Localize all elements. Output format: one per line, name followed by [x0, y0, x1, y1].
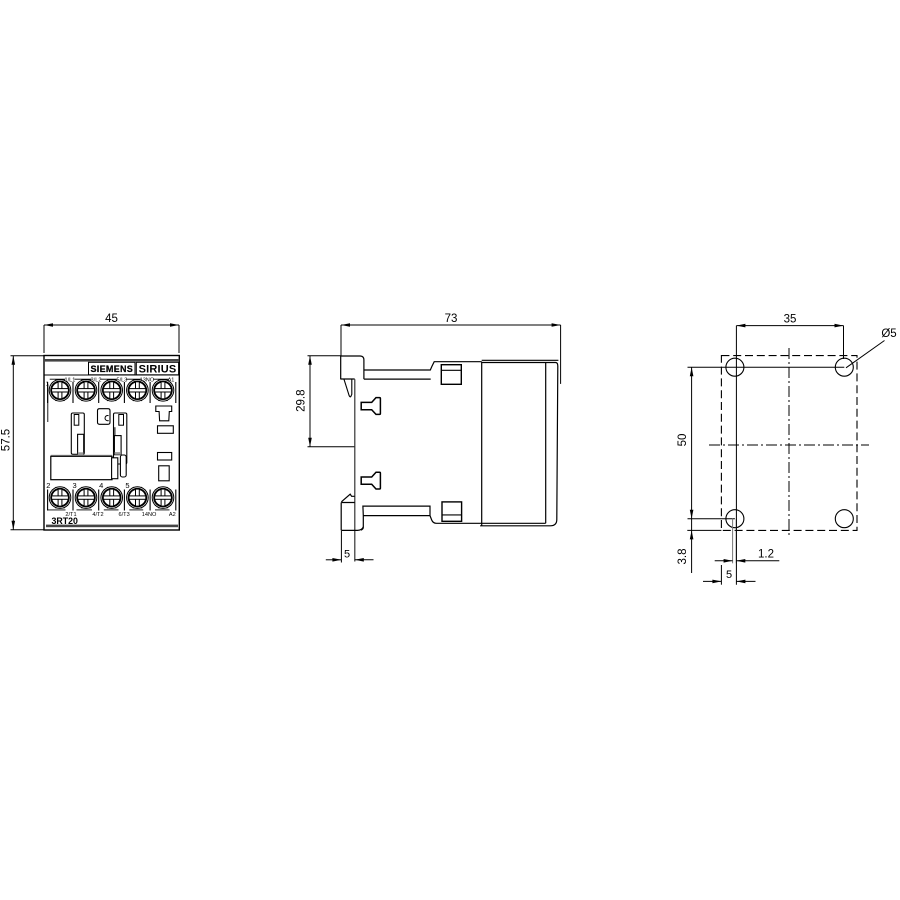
svg-text:3: 3 — [73, 481, 77, 490]
svg-text:4: 4 — [99, 481, 103, 490]
svg-text:35: 35 — [784, 314, 797, 326]
svg-text:5: 5 — [125, 481, 129, 490]
svg-text:Ø5: Ø5 — [881, 328, 896, 340]
svg-text:5: 5 — [344, 549, 350, 561]
svg-text:50: 50 — [677, 434, 689, 447]
svg-text:4/T2: 4/T2 — [92, 512, 103, 518]
svg-text:1.2: 1.2 — [758, 549, 774, 561]
svg-text:5: 5 — [726, 569, 732, 581]
svg-text:57.5: 57.5 — [1, 429, 13, 451]
svg-text:3RT20: 3RT20 — [52, 516, 79, 526]
svg-text:6/T3: 6/T3 — [118, 512, 129, 518]
svg-text:2: 2 — [46, 481, 50, 490]
svg-text:29.8: 29.8 — [296, 390, 308, 412]
svg-text:3.8: 3.8 — [677, 549, 689, 565]
svg-text:A2: A2 — [169, 512, 176, 518]
svg-text:SIEMENS: SIEMENS — [90, 364, 133, 374]
svg-text:14NO: 14NO — [142, 512, 157, 518]
svg-text:45: 45 — [105, 313, 118, 325]
svg-text:73: 73 — [445, 313, 458, 325]
svg-text:SIRIUS: SIRIUS — [139, 364, 177, 376]
